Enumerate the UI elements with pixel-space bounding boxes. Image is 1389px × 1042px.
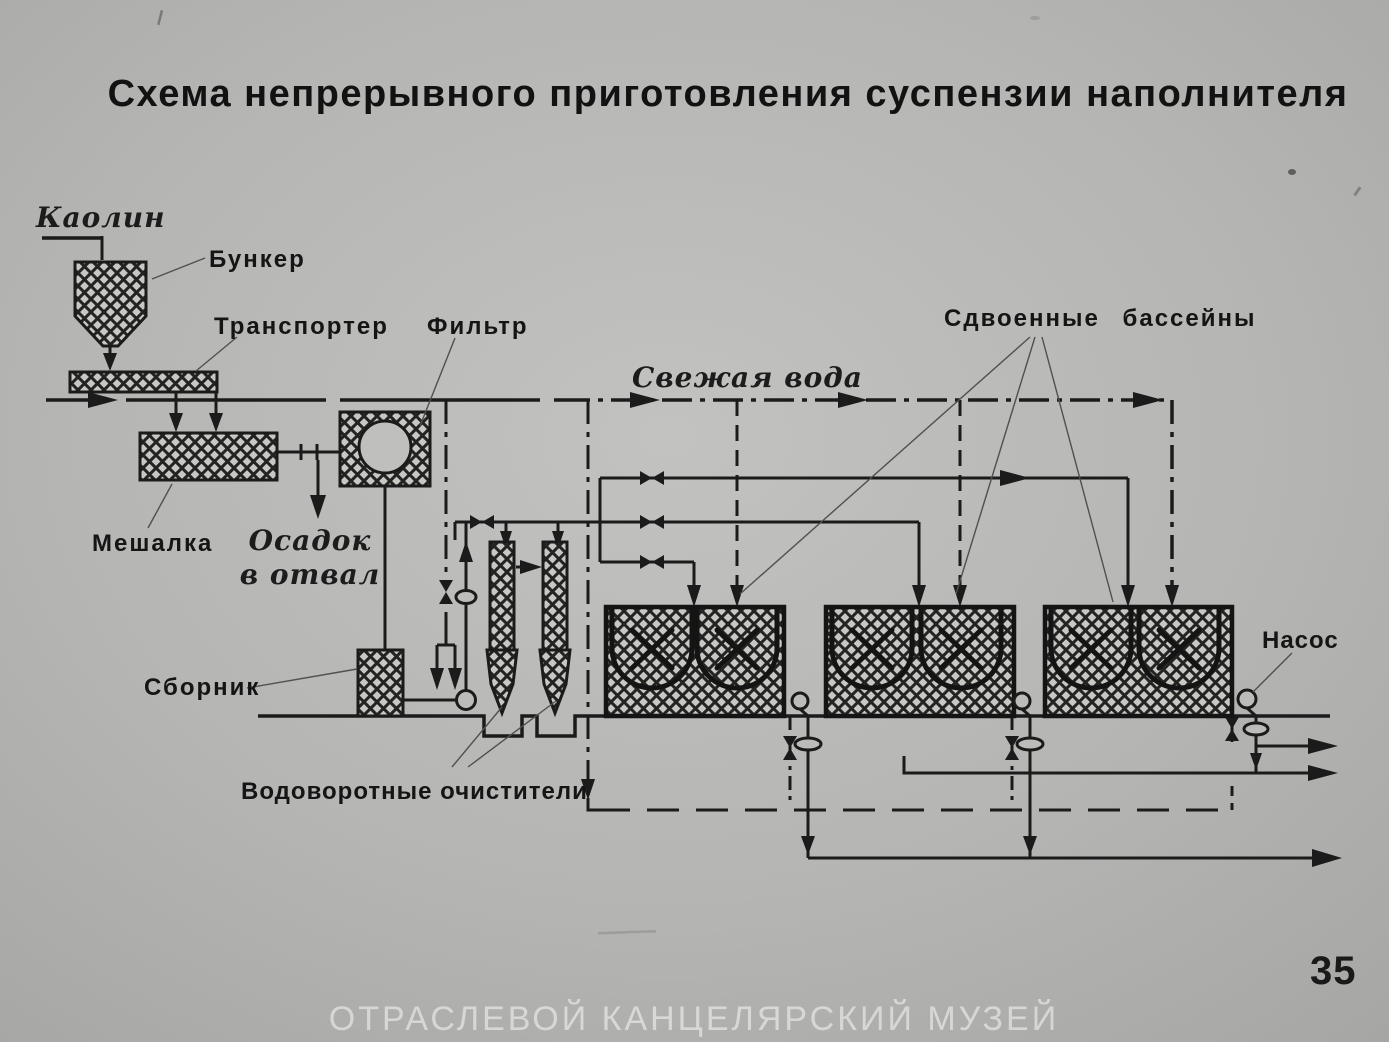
label-twin-basins: Сдвоенные бассейны: [944, 305, 1256, 332]
collector-tank: [358, 650, 403, 716]
basin-1: [606, 607, 784, 716]
basin-2: [826, 607, 1014, 716]
mixer-unit: [140, 433, 277, 480]
label-sediment-line1: Осадок: [249, 524, 372, 557]
filter-unit: [340, 412, 430, 486]
conveyor-belt: [70, 372, 217, 392]
label-pump: Насос: [1262, 627, 1339, 654]
label-sediment-line2: в отвал: [240, 558, 380, 591]
watermark-text: ОТРАСЛЕВОЙ КАНЦЕЛЯРСКИЙ МУЗЕЙ: [329, 1000, 1059, 1038]
label-vortex-cleaners: Водоворотные очистители: [241, 778, 588, 805]
filmstrip-slide: Схема непрерывного приготовления суспенз…: [0, 0, 1389, 1042]
vortex-cleaner-2: [540, 542, 570, 713]
vortex-cleaner-1: [487, 542, 517, 713]
page-number: 35: [1310, 949, 1357, 993]
label-filter: Фильтр: [427, 313, 529, 340]
basin-3: [1045, 607, 1232, 716]
process-flow-diagram: Схема непрерывного приготовления суспенз…: [0, 0, 1389, 1042]
label-conveyor: Транспортер: [214, 313, 389, 340]
label-mixer: Мешалка: [92, 530, 213, 557]
label-collector: Сборник: [144, 674, 260, 701]
label-kaolin: Каолин: [35, 201, 166, 234]
label-hopper: Бункер: [209, 246, 306, 273]
label-fresh-water: Свежая вода: [632, 361, 863, 394]
slide-title: Схема непрерывного приготовления суспенз…: [108, 73, 1349, 115]
